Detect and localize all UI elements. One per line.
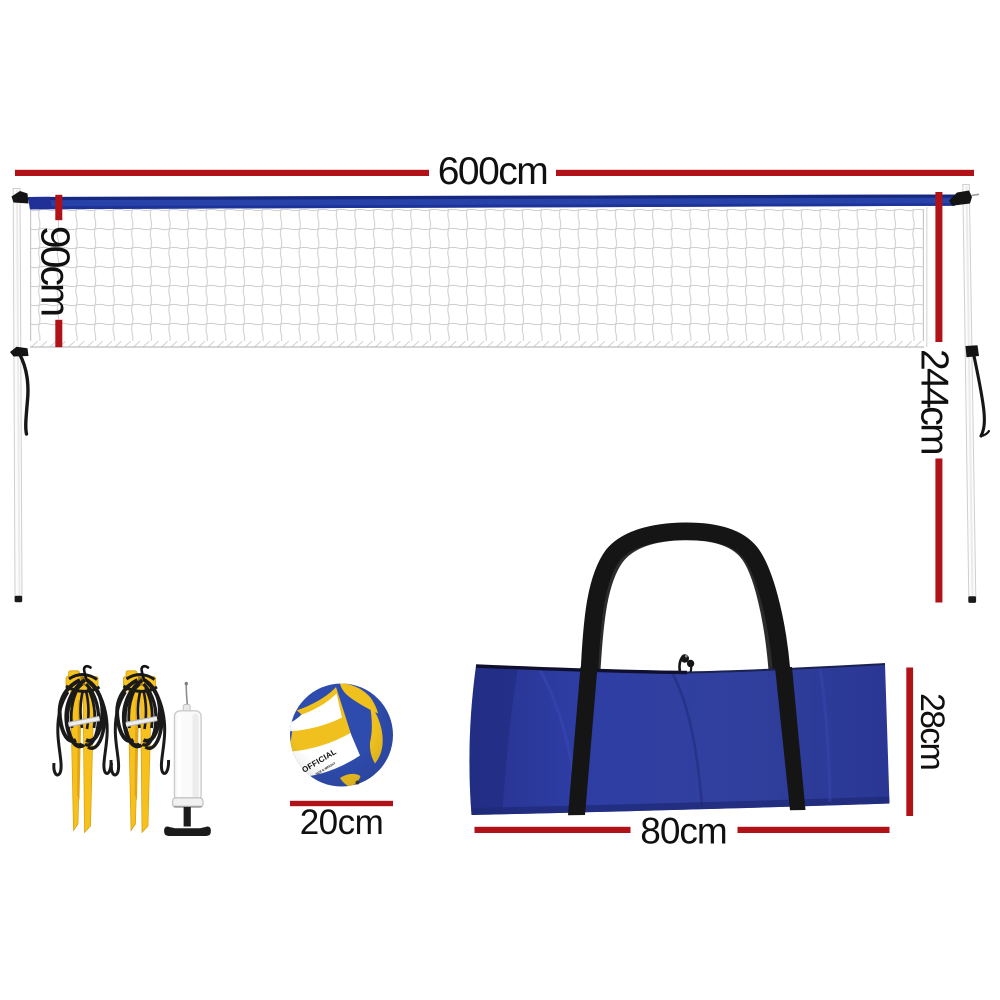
- svg-text:20cm: 20cm: [300, 803, 384, 842]
- svg-text:600cm: 600cm: [438, 150, 548, 193]
- svg-text:80cm: 80cm: [640, 811, 726, 852]
- svg-text:90cm: 90cm: [33, 226, 79, 315]
- svg-text:244cm: 244cm: [913, 349, 956, 453]
- svg-text:28cm: 28cm: [913, 693, 951, 769]
